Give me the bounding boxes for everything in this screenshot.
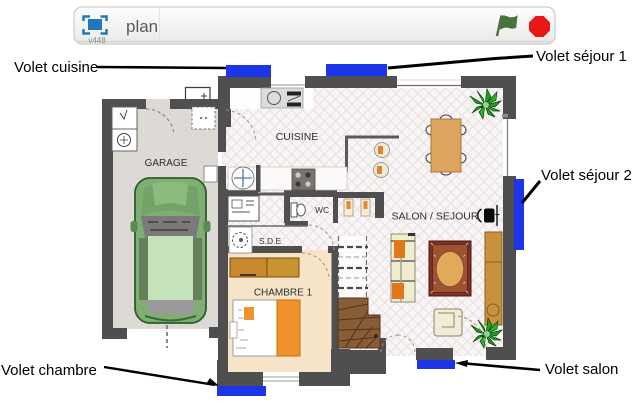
svg-text:S.D.E: S.D.E xyxy=(259,236,282,246)
svg-text:CUISINE: CUISINE xyxy=(276,131,319,143)
svg-text:Volet séjour 2: Volet séjour 2 xyxy=(541,167,632,184)
svg-text:v448: v448 xyxy=(88,36,106,45)
svg-text:GARAGE: GARAGE xyxy=(145,158,188,169)
svg-text:SALON / SEJOUR: SALON / SEJOUR xyxy=(392,211,479,223)
svg-text:Volet salon: Volet salon xyxy=(545,361,618,378)
svg-text:plan: plan xyxy=(126,17,158,36)
svg-text:WC: WC xyxy=(315,205,329,215)
svg-text:Volet chambre: Volet chambre xyxy=(1,362,97,379)
svg-text:Volet cuisine: Volet cuisine xyxy=(14,59,98,76)
svg-text:CHAMBRE 1: CHAMBRE 1 xyxy=(254,288,313,299)
svg-text:Volet séjour 1: Volet séjour 1 xyxy=(536,48,627,65)
